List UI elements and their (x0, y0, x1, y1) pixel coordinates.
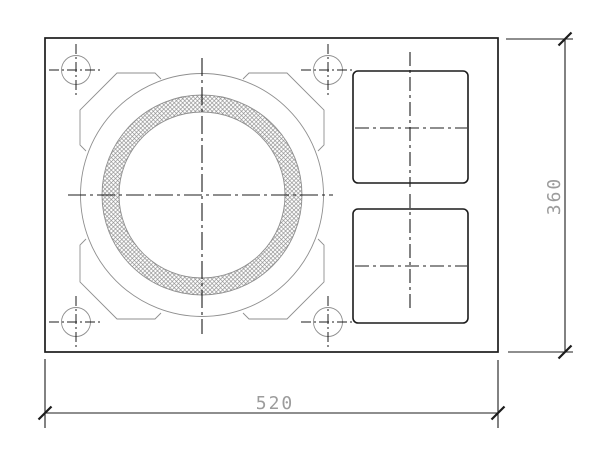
cad-canvas: 520 360 (0, 0, 601, 456)
pockets (353, 52, 468, 323)
dim-width-label: 520 (256, 393, 295, 414)
dim-height-label: 360 (544, 177, 565, 216)
drawing-sheet: 520 360 (0, 0, 601, 456)
